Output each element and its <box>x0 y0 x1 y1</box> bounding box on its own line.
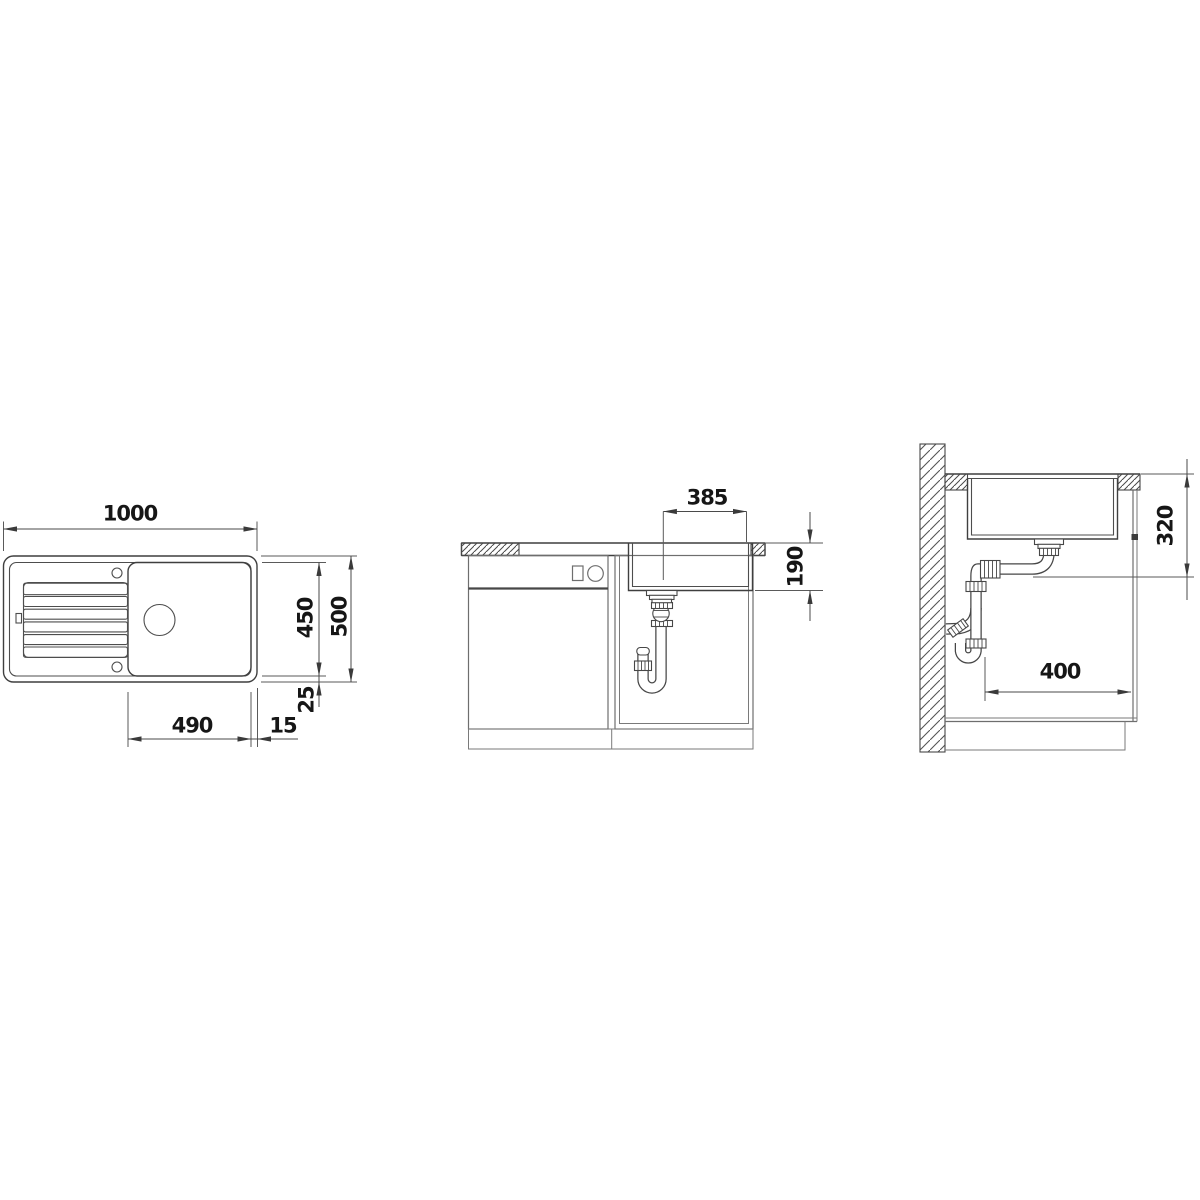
dim-label-bowl-depth: 190 <box>786 547 807 588</box>
dim-bowl-top-width <box>663 512 746 581</box>
dim-label-overall-depth: 500 <box>330 597 351 638</box>
dim-label-bowl-length: 450 <box>296 598 317 639</box>
pipe-nut-upper-side <box>966 582 986 592</box>
siphon-front <box>635 591 678 689</box>
mounting-clip <box>1132 534 1139 540</box>
countertop-front <box>462 543 766 556</box>
panel-symbol-rect <box>573 566 584 581</box>
tap-hole-bottom <box>112 662 122 672</box>
pipe-nut-lower-side <box>966 639 986 648</box>
countertop-section-left <box>462 543 520 556</box>
drainboard-slat <box>24 622 128 632</box>
trap-cap <box>637 648 650 656</box>
front-view <box>462 512 824 750</box>
trap-union-nut <box>635 661 652 671</box>
dim-label-wall-clearance: 400 <box>1040 662 1081 683</box>
drainboard-slat <box>24 647 128 657</box>
wall-outlet-nut <box>948 619 969 637</box>
drain-hole <box>144 605 175 636</box>
base-cabinet-right <box>615 556 753 730</box>
drainboard-slat <box>24 583 128 595</box>
dim-label-bowl-width: 490 <box>172 716 213 737</box>
tap-hole-top <box>112 568 122 578</box>
countertop-section-side-left <box>945 474 968 490</box>
countertop-section-side-right <box>1118 474 1140 490</box>
base-cabinet-left <box>469 556 609 730</box>
sink-bowl-side <box>968 479 1118 540</box>
dim-label-bowl-top-width: 385 <box>687 488 728 509</box>
overflow-notch <box>16 614 22 624</box>
tailpipe-nut-upper <box>652 603 673 609</box>
plinth-side <box>945 722 1125 751</box>
drainboard-slat <box>24 597 128 607</box>
countertop-side <box>945 474 1140 490</box>
drain-pipe-side <box>946 539 1064 658</box>
dim-label-clearance-height: 320 <box>1156 506 1177 547</box>
drainboard <box>24 583 129 658</box>
sink-technical-drawing-page: 1000 450 500 25 490 15 385 190 320 400 <box>0 0 1200 1200</box>
bowl-top <box>128 563 251 677</box>
strainer-nut-side <box>1040 548 1059 555</box>
wall-section <box>920 444 945 752</box>
drainboard-slat <box>24 635 128 645</box>
dim-label-edge-gap: 15 <box>269 716 296 737</box>
union-nut-side <box>981 561 1001 579</box>
side-view <box>920 444 1194 752</box>
strainer-front <box>647 591 678 603</box>
sink-bowl-front <box>629 543 753 591</box>
plinth-front <box>469 729 754 749</box>
technical-drawing <box>0 0 1200 1200</box>
dim-label-rim-offset: 25 <box>297 686 318 713</box>
panel-symbol-knob <box>588 566 604 582</box>
strainer-side <box>1035 539 1064 556</box>
dim-top-width <box>4 522 258 552</box>
drainboard-slat <box>24 609 128 619</box>
dim-label-top-width: 1000 <box>103 504 157 525</box>
